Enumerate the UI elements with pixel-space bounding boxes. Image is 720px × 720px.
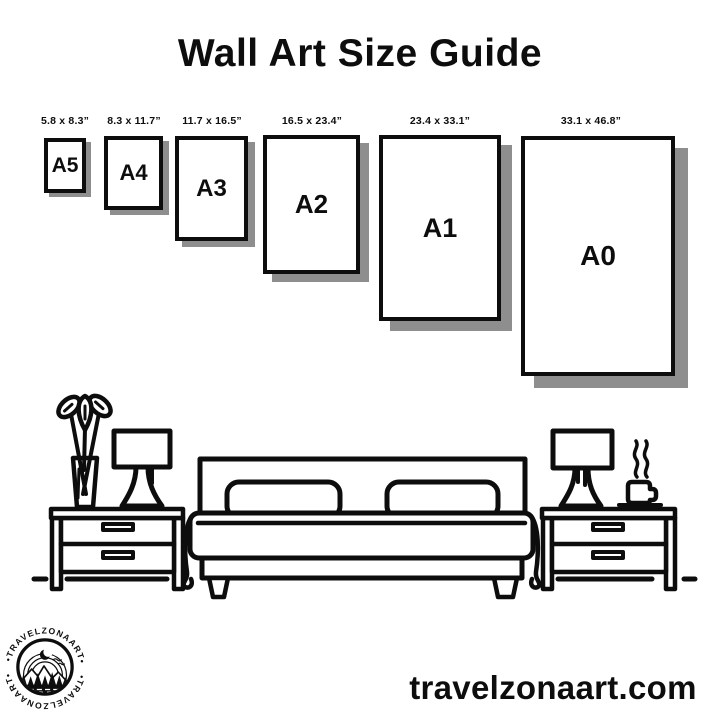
size-label-a0: 33.1 x 46.8” — [536, 115, 646, 127]
frame-a1: A1 — [379, 135, 501, 321]
right-lamp-icon — [553, 431, 612, 506]
frame-a1-name: A1 — [423, 213, 458, 244]
plant-icon — [55, 392, 115, 507]
size-label-a2: 16.5 x 23.4” — [257, 115, 367, 127]
coffee-cup-icon — [619, 441, 661, 505]
frame-a0-name: A0 — [580, 240, 616, 272]
frame-a0: A0 — [521, 136, 675, 376]
size-label-a3: 11.7 x 16.5” — [157, 115, 267, 127]
frame-a3: A3 — [175, 136, 248, 241]
logo-mountain-scene — [17, 647, 72, 696]
logo-badge: •TRAVELZONAART• •TRAVELZONAART• — [2, 624, 88, 710]
frame-a3-name: A3 — [196, 175, 227, 203]
frame-a2: A2 — [263, 135, 360, 274]
page-title: Wall Art Size Guide — [0, 34, 720, 73]
frame-a2-name: A2 — [295, 189, 328, 220]
bed-icon — [184, 459, 540, 597]
website-url: travelzonaart.com — [393, 671, 713, 704]
frame-a5: A5 — [44, 138, 86, 193]
frame-a4: A4 — [104, 136, 163, 210]
frame-a5-name: A5 — [52, 154, 79, 178]
frame-a4-name: A4 — [119, 160, 147, 186]
bedroom-illustration — [0, 380, 720, 615]
size-label-a1: 23.4 x 33.1” — [385, 115, 495, 127]
left-lamp-icon — [114, 431, 170, 506]
